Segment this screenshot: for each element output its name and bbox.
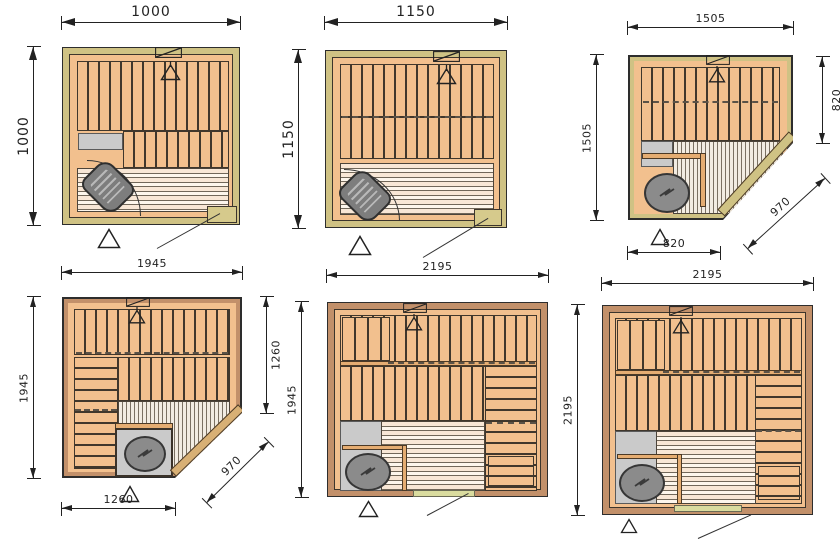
dim-tick	[571, 515, 585, 516]
plan4-bench-dash	[76, 352, 228, 354]
dim-label: 1945	[137, 257, 167, 270]
plan4-height-dimension: 1945	[33, 297, 34, 478]
plan2-air-triangle-icon	[348, 235, 372, 256]
dim-tick	[548, 269, 549, 283]
arrow-right-icon	[227, 18, 240, 26]
dim-tick	[507, 16, 508, 30]
plan2-upper-bench	[340, 64, 494, 117]
arrow-left-icon	[62, 269, 72, 275]
dim-tick	[27, 225, 41, 226]
plan1-height-dimension: 1000	[33, 47, 34, 225]
plan4-diagonal-dimension: 970	[207, 442, 269, 503]
arrow-up-icon	[29, 47, 37, 60]
plan6-step-bench	[758, 466, 800, 500]
arrow-left-icon	[62, 505, 72, 511]
vent-flap-icon	[126, 297, 150, 307]
arrow-down-icon	[263, 403, 269, 413]
plan6-top-bench-step	[617, 320, 665, 370]
plan5-mid-bench	[340, 366, 490, 421]
plan3-heater-rail-v	[700, 153, 706, 207]
plan6-height-dimension: 2195	[577, 305, 578, 515]
vent-flap-icon	[403, 303, 427, 313]
plan4-heater	[124, 436, 166, 472]
dim-tick	[816, 143, 830, 144]
plan5-heater	[345, 453, 391, 491]
plan3-diagonal-dimension: 970	[748, 178, 826, 249]
plan6-heater-rail-h	[617, 454, 681, 459]
arrow-left-icon	[628, 249, 638, 255]
arrow-up-icon	[30, 297, 36, 307]
arrow-right-icon	[165, 505, 175, 511]
heater-mark-icon	[633, 477, 651, 490]
plan3-bench-dash	[643, 101, 778, 103]
vent-flap-icon	[669, 306, 693, 316]
plan5-height-dimension: 1945	[301, 302, 302, 497]
plan2-width-dimension: 1150	[325, 22, 507, 23]
plan4-mid-bench	[118, 357, 230, 401]
plan6-air-triangle-icon	[620, 518, 638, 534]
dim-tick	[720, 246, 721, 260]
dim-label: 1505	[696, 12, 726, 25]
plan6-room	[602, 305, 813, 515]
plan1-door-leaf	[207, 206, 237, 223]
dim-label: 1150	[281, 119, 297, 159]
arrow-left-icon	[746, 239, 757, 250]
arrow-up-icon	[294, 50, 302, 63]
plan6-door-leader-line	[698, 514, 751, 539]
plan1-mid-bench	[123, 131, 229, 168]
dim-label: 2195	[562, 395, 575, 425]
arrow-up-icon	[298, 302, 304, 312]
plan6-heater-rail-v	[677, 454, 682, 504]
dim-label: 820	[829, 89, 840, 112]
plan5-heater-rail-v	[402, 445, 407, 491]
plan6-right-bench-dash	[756, 430, 801, 432]
vent-triangle-icon	[160, 61, 181, 81]
arrow-right-icon	[259, 440, 270, 451]
plan3-room	[628, 55, 793, 220]
plan1-width-dimension: 1000	[62, 22, 240, 23]
plan6-floor	[656, 431, 756, 504]
plan4-right-dimension: 1260	[266, 297, 267, 413]
plan5-top-bench-step	[342, 317, 390, 361]
arrow-down-icon	[593, 210, 599, 220]
plan3-bottom-dimension: 820	[628, 252, 720, 253]
dim-label: 1945	[18, 373, 31, 403]
arrow-left-icon	[204, 493, 215, 504]
sauna-plans-sheet: 1000 1000 1150 1150	[0, 0, 840, 549]
plan6-bench-dash	[663, 371, 800, 373]
arrow-down-icon	[298, 487, 304, 497]
dim-label: 1000	[16, 116, 32, 156]
plan6-width-dimension: 2195	[602, 283, 813, 284]
dim-tick	[175, 502, 176, 516]
plan4-room	[62, 297, 242, 478]
arrow-right-icon	[538, 272, 548, 278]
heater-mark-icon	[136, 448, 154, 461]
dim-tick	[242, 266, 243, 280]
dim-label: 2195	[693, 268, 723, 281]
dim-label: 1000	[131, 4, 171, 20]
heater-mark-icon	[658, 187, 676, 200]
vent-flap-icon	[706, 55, 730, 65]
arrow-left-icon	[325, 18, 338, 26]
vent-triangle-icon	[128, 307, 146, 324]
arrow-right-icon	[710, 249, 720, 255]
arrow-right-icon	[783, 24, 793, 30]
arrow-left-icon	[327, 272, 337, 278]
dim-tick	[295, 497, 309, 498]
plan1-air-triangle-icon	[97, 228, 121, 249]
plan2-room	[325, 50, 507, 228]
plan2-height-dimension: 1150	[298, 50, 299, 228]
plan6-door	[674, 505, 742, 512]
plan3-width-dimension: 1505	[628, 27, 793, 28]
arrow-down-icon	[819, 133, 825, 143]
plan5-floor	[381, 421, 485, 491]
arrow-left-icon	[628, 24, 638, 30]
vent-triangle-icon	[436, 65, 457, 85]
arrow-up-icon	[574, 305, 580, 315]
vent-triangle-icon	[708, 66, 726, 83]
plan1-upper-bench	[77, 61, 229, 131]
vent-triangle-icon	[672, 317, 690, 334]
plan3-air-triangle-icon	[650, 228, 670, 246]
plan4-left-bench	[74, 357, 118, 469]
arrow-down-icon	[30, 468, 36, 478]
plan4-bottom-dimension: 1260	[62, 508, 175, 509]
arrow-left-icon	[602, 280, 612, 286]
arrow-up-icon	[819, 57, 825, 67]
dim-tick	[260, 413, 274, 414]
plan2-bench-dash	[342, 116, 492, 118]
dim-tick	[27, 478, 41, 479]
plan3-heater	[644, 173, 690, 213]
arrow-right-icon	[803, 280, 813, 286]
vent-flap-icon	[155, 47, 182, 58]
dim-label: 1150	[396, 4, 436, 20]
plan1-room	[62, 47, 240, 225]
plan5-right-bench-dash	[486, 422, 536, 424]
plan6-heater	[619, 464, 665, 502]
plan5-width-dimension: 2195	[327, 275, 548, 276]
plan5-room	[327, 302, 548, 497]
arrow-right-icon	[815, 176, 826, 187]
dim-label: 970	[219, 453, 244, 478]
dim-tick	[813, 277, 814, 291]
plan3-heater-rail-h	[642, 153, 706, 159]
dim-label: 1260	[270, 340, 283, 370]
plan2-lower-bench	[340, 117, 494, 159]
plan5-step-bench	[488, 456, 534, 488]
heater-mark-icon	[359, 466, 377, 479]
arrow-up-icon	[593, 55, 599, 65]
plan4-air-triangle-icon	[120, 485, 140, 503]
plan3-right-dimension: 820	[822, 57, 823, 143]
vent-triangle-icon	[405, 314, 423, 331]
arrow-right-icon	[232, 269, 242, 275]
dim-label: 1505	[581, 123, 594, 153]
plan4-top-bench	[74, 309, 230, 355]
dim-label: 2195	[423, 260, 453, 273]
plan3-height-dimension: 1505	[596, 55, 597, 220]
heater-coil	[345, 176, 385, 216]
dim-tick	[590, 220, 604, 221]
dim-tick	[292, 228, 306, 229]
heater-coil	[88, 167, 128, 207]
plan5-bench-dash	[388, 362, 535, 364]
plan6-mid-bench	[615, 375, 763, 431]
dim-label: 970	[768, 194, 793, 219]
plan5-heater-rail-h	[342, 445, 406, 450]
plan1-gray-area	[78, 133, 123, 150]
vent-flap-icon	[433, 51, 460, 62]
arrow-down-icon	[294, 215, 302, 228]
arrow-right-icon	[494, 18, 507, 26]
arrow-down-icon	[574, 505, 580, 515]
arrow-left-icon	[62, 18, 75, 26]
dim-tick	[240, 16, 241, 30]
dim-tick	[793, 21, 794, 35]
plan5-air-triangle-icon	[358, 500, 379, 518]
plan4-width-dimension: 1945	[62, 272, 242, 273]
arrow-up-icon	[263, 297, 269, 307]
arrow-down-icon	[29, 212, 37, 225]
plan4-left-bench-dash	[75, 409, 117, 411]
dim-label: 1945	[286, 385, 299, 415]
